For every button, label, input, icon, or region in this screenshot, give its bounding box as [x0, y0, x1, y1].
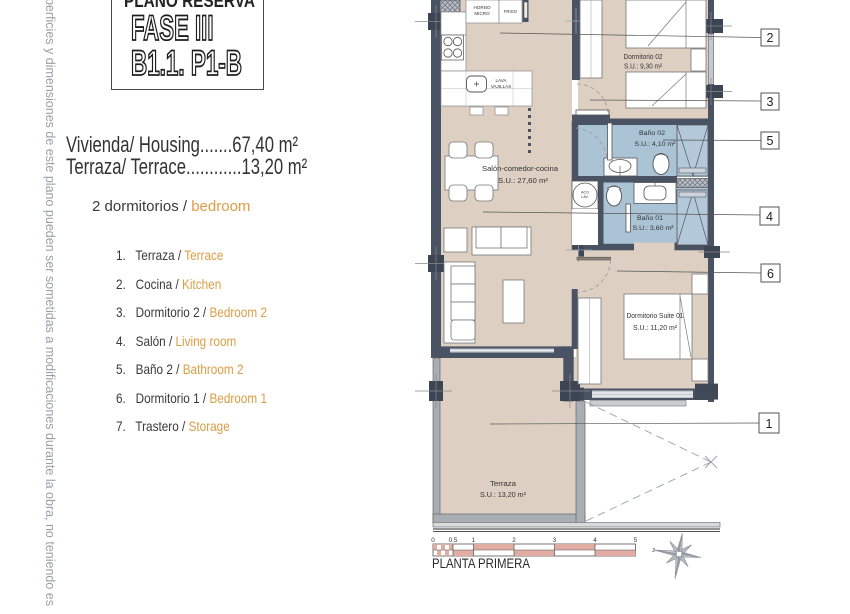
- svg-text:S.U.: 3,60 m²: S.U.: 3,60 m²: [633, 225, 675, 232]
- svg-text:1: 1: [472, 537, 476, 544]
- svg-text:Terraza: Terraza: [490, 479, 517, 488]
- svg-text:1: 1: [766, 417, 773, 431]
- svg-text:MICRO: MICRO: [474, 11, 490, 16]
- svg-text:S.U.: 11,20 m²: S.U.: 11,20 m²: [633, 323, 677, 332]
- svg-text:z: z: [652, 547, 656, 554]
- svg-text:Dormitorio Suite 01: Dormitorio Suite 01: [627, 311, 684, 320]
- svg-text:3: 3: [553, 537, 557, 544]
- svg-text:S.U.: 27,60 m²: S.U.: 27,60 m²: [498, 176, 549, 185]
- svg-text:FRIGO: FRIGO: [504, 9, 518, 14]
- svg-text:Baño 01: Baño 01: [637, 215, 663, 222]
- svg-text:VAJILLAS: VAJILLAS: [491, 84, 512, 89]
- svg-text:LAV.: LAV.: [581, 195, 588, 199]
- svg-text:2: 2: [767, 31, 774, 45]
- svg-text:0: 0: [431, 537, 435, 544]
- svg-text:LAVA: LAVA: [495, 78, 507, 83]
- svg-text:3: 3: [767, 95, 774, 109]
- svg-text:5: 5: [767, 134, 774, 148]
- svg-text:HORNO: HORNO: [473, 5, 491, 10]
- svg-text:ACO: ACO: [581, 191, 589, 195]
- svg-text:S.U.: 13,20 m²: S.U.: 13,20 m²: [480, 490, 526, 499]
- svg-text:S.U.: 9,30 m²: S.U.: 9,30 m²: [624, 62, 662, 71]
- svg-text:Dormitorio 02: Dormitorio 02: [624, 52, 663, 61]
- svg-text:Baño 02: Baño 02: [639, 130, 665, 137]
- svg-text:0.5: 0.5: [449, 537, 458, 544]
- svg-text:4: 4: [766, 210, 773, 224]
- svg-text:6: 6: [767, 267, 774, 281]
- svg-text:4: 4: [593, 537, 597, 544]
- svg-text:Salón-comedor-cocina: Salón-comedor-cocina: [482, 164, 559, 173]
- svg-text:PLANTA PRIMERA: PLANTA PRIMERA: [432, 556, 530, 571]
- svg-text:S.U.: 4,10 m²: S.U.: 4,10 m²: [635, 141, 677, 148]
- svg-text:5: 5: [634, 537, 638, 544]
- svg-text:2: 2: [512, 537, 516, 544]
